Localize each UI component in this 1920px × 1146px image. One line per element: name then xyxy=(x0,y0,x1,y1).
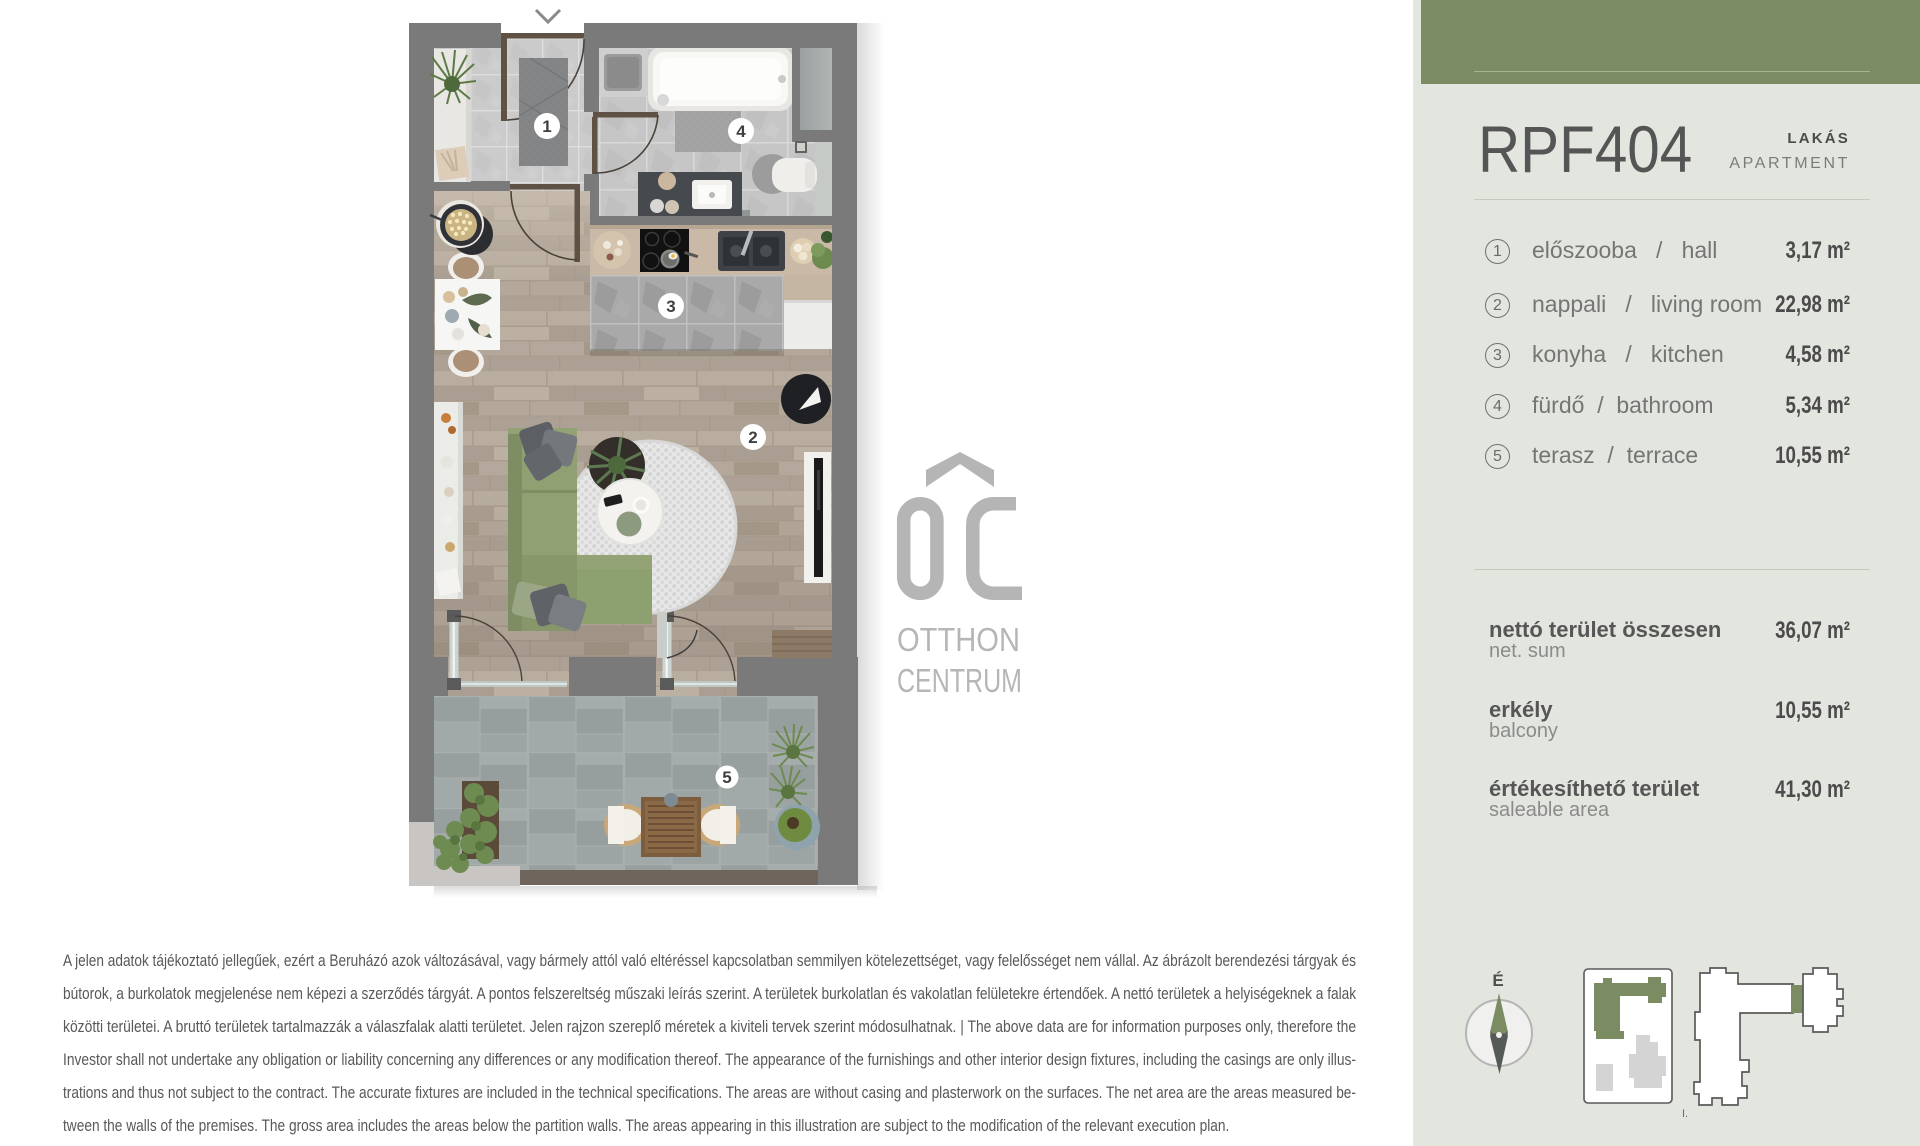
svg-text:3: 3 xyxy=(666,297,675,316)
svg-text:É: É xyxy=(1492,971,1503,990)
svg-text:5: 5 xyxy=(722,768,731,787)
svg-text:1: 1 xyxy=(542,117,551,136)
svg-text:2: 2 xyxy=(748,428,757,447)
svg-text:I.: I. xyxy=(1682,1108,1688,1120)
svg-text:OTTHON: OTTHON xyxy=(897,621,1020,658)
svg-text:4: 4 xyxy=(736,122,746,141)
svg-text:CENTRUM: CENTRUM xyxy=(897,662,1022,699)
